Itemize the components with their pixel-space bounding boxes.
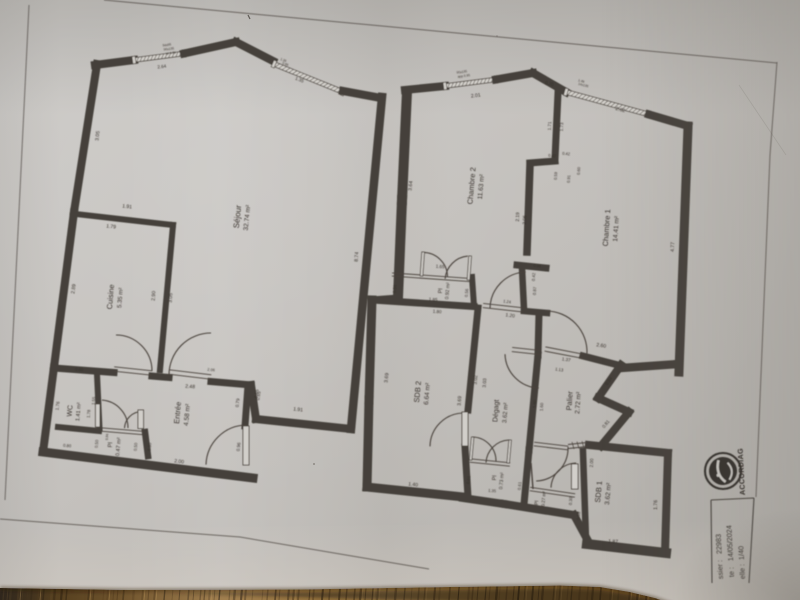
- svg-text:0.98: 0.98: [576, 511, 582, 520]
- svg-text:1.80: 1.80: [532, 399, 537, 408]
- svg-text:2.00: 2.00: [589, 458, 595, 468]
- svg-text:1.20: 1.20: [505, 312, 515, 319]
- svg-text:1.60: 1.60: [539, 402, 544, 411]
- svg-text:0.87: 0.87: [532, 286, 538, 295]
- svg-text:1.85: 1.85: [429, 297, 439, 303]
- svg-text:0.30: 0.30: [568, 496, 574, 505]
- svg-text:3.05: 3.05: [168, 293, 175, 303]
- svg-text:3.02: 3.02: [473, 375, 480, 385]
- svg-text:1.55: 1.55: [91, 396, 97, 405]
- svg-text:8.74: 8.74: [354, 252, 361, 262]
- svg-text:0.56: 0.56: [392, 284, 398, 293]
- svg-text:0.84: 0.84: [105, 433, 110, 440]
- svg-text:0.79: 0.79: [235, 398, 241, 408]
- svg-text:2.00: 2.00: [174, 458, 185, 465]
- svg-text:0.61: 0.61: [517, 481, 523, 490]
- svg-text:0.42: 0.42: [562, 151, 571, 157]
- svg-text:0.96: 0.96: [236, 442, 242, 452]
- svg-text:0.61: 0.61: [466, 475, 472, 484]
- svg-text:1.65: 1.65: [436, 264, 446, 270]
- svg-text:0.59: 0.59: [553, 171, 559, 180]
- svg-text:3.05: 3.05: [95, 131, 102, 142]
- svg-text:1.91: 1.91: [293, 406, 304, 413]
- svg-text:1.73: 1.73: [559, 122, 564, 132]
- svg-text:1.79: 1.79: [106, 223, 117, 230]
- svg-text:SDB 2: SDB 2: [412, 381, 423, 403]
- svg-text:3.03: 3.03: [482, 378, 489, 388]
- svg-text:3.69: 3.69: [457, 396, 464, 406]
- svg-text:0.56: 0.56: [464, 288, 470, 297]
- svg-text:0.80: 0.80: [63, 443, 72, 449]
- svg-text:Pl: Pl: [534, 500, 540, 505]
- svg-text:0.80: 0.80: [75, 367, 84, 373]
- svg-text:0.50: 0.50: [94, 439, 100, 448]
- svg-text:0.60: 0.60: [147, 442, 153, 451]
- svg-text:Pl: Pl: [438, 288, 444, 293]
- svg-text:1.78: 1.78: [86, 409, 92, 418]
- svg-text:Palier: Palier: [564, 390, 574, 410]
- svg-text:1.71: 1.71: [547, 121, 552, 131]
- svg-text:2.89: 2.89: [70, 283, 77, 294]
- svg-text:1.24: 1.24: [503, 299, 512, 305]
- svg-text:0.42: 0.42: [531, 272, 537, 281]
- svg-text:0.47: 0.47: [548, 153, 557, 159]
- svg-text:Entrée: Entrée: [172, 401, 183, 424]
- svg-text:1.35: 1.35: [488, 488, 497, 494]
- svg-text:1.91: 1.91: [122, 203, 133, 210]
- svg-text:Pl: Pl: [108, 442, 114, 448]
- svg-text:0.66: 0.66: [533, 264, 540, 269]
- svg-text:0.50: 0.50: [133, 442, 139, 451]
- svg-text:2.90: 2.90: [151, 291, 158, 301]
- svg-text:2.19: 2.19: [515, 212, 521, 222]
- svg-text:1.80: 1.80: [433, 309, 443, 315]
- svg-text:3.69: 3.69: [384, 373, 391, 384]
- svg-text:WC: WC: [67, 405, 75, 417]
- svg-text:2.48: 2.48: [185, 384, 195, 391]
- svg-text:1.40: 1.40: [408, 481, 419, 488]
- svg-text:3.64: 3.64: [408, 181, 415, 192]
- svg-text:0.60: 0.60: [576, 166, 582, 175]
- svg-text:2.06: 2.06: [522, 215, 528, 225]
- svg-text:2.06: 2.06: [207, 368, 215, 373]
- svg-text:Pl: Pl: [492, 475, 498, 480]
- svg-text:0.91: 0.91: [566, 174, 572, 183]
